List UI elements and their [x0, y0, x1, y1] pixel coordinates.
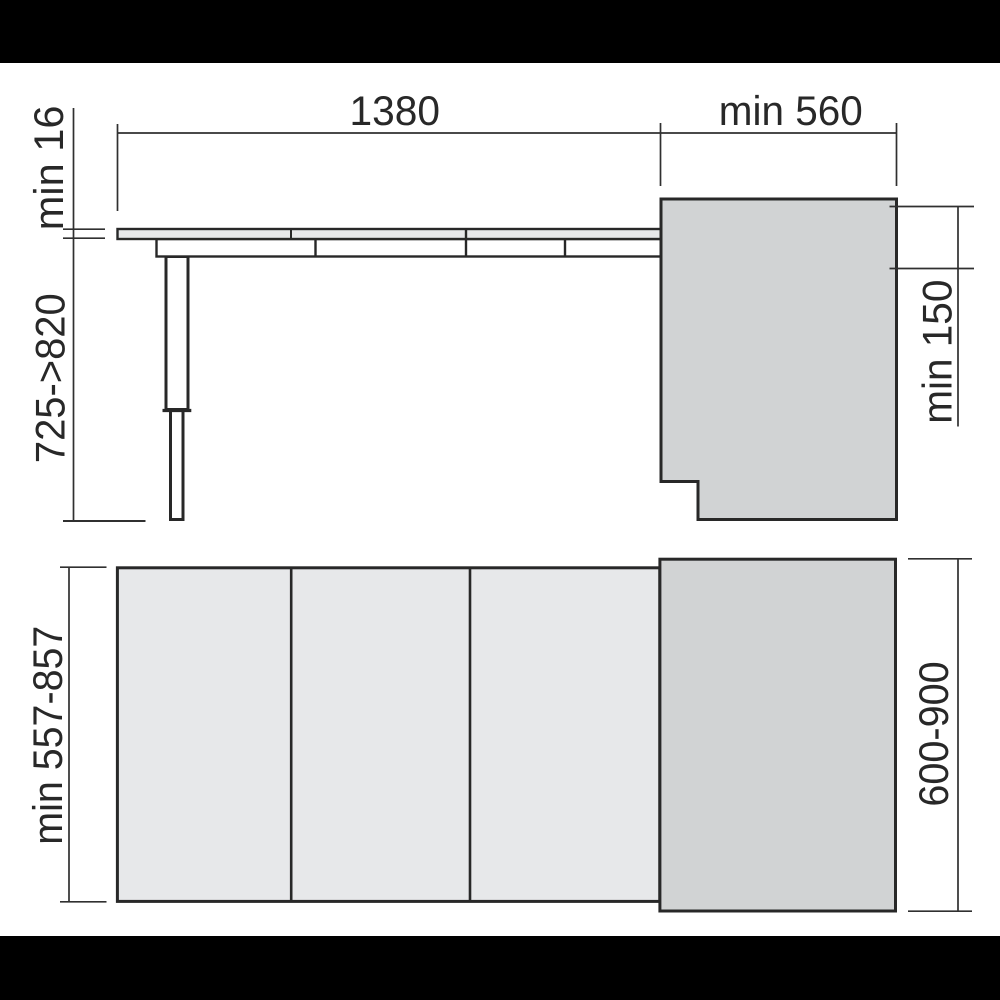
- svg-text:min 557-857: min 557-857: [24, 626, 71, 845]
- svg-text:min 16: min 16: [25, 106, 72, 231]
- svg-text:1380: 1380: [350, 87, 441, 134]
- svg-text:min 560: min 560: [719, 87, 863, 134]
- svg-text:min 150: min 150: [914, 280, 961, 424]
- svg-text:725->820: 725->820: [27, 293, 74, 463]
- svg-text:600-900: 600-900: [910, 661, 957, 806]
